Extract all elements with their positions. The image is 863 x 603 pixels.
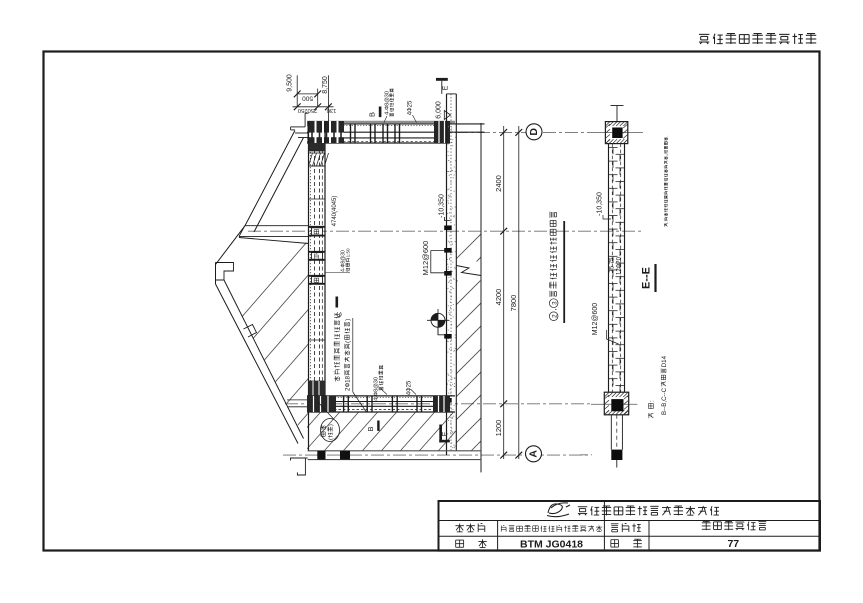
svg-text:-10,350: -10,350 — [439, 194, 446, 218]
svg-text:4Ф25: 4Ф25 — [407, 380, 413, 395]
svg-text:4-Ф8@30: 4-Ф8@30 — [374, 377, 380, 401]
svg-text:D14: D14 — [661, 355, 668, 367]
svg-text:-10,350: -10,350 — [597, 192, 604, 216]
svg-text::: : — [664, 222, 669, 223]
svg-text:3: 3 — [551, 301, 558, 305]
svg-text:2: 2 — [551, 314, 558, 318]
svg-text:8,750: 8,750 — [322, 76, 329, 94]
svg-text:250250: 250250 — [298, 107, 317, 113]
svg-text:E: E — [442, 431, 449, 436]
svg-text:77: 77 — [727, 538, 739, 550]
svg-text:9,500: 9,500 — [287, 74, 294, 92]
svg-text:M12@600: M12@600 — [592, 303, 599, 336]
svg-text:BTM JG0418: BTM JG0418 — [520, 538, 583, 550]
svg-text:B--B,C--C: B--B,C--C — [661, 387, 668, 415]
svg-text:2400: 2400 — [494, 175, 503, 192]
svg-text:D: D — [528, 128, 540, 136]
svg-text::: : — [649, 400, 656, 402]
svg-text:M12@600: M12@600 — [421, 241, 430, 276]
svg-text:1:50: 1:50 — [346, 248, 351, 257]
svg-text:B: B — [366, 426, 375, 431]
svg-text:A: A — [527, 450, 539, 458]
svg-text:4Ф25: 4Ф25 — [408, 100, 414, 115]
svg-text:E: E — [443, 85, 450, 90]
svg-text:1200: 1200 — [494, 420, 503, 437]
svg-text:4200: 4200 — [494, 289, 503, 306]
svg-text:500: 500 — [302, 95, 313, 102]
svg-text:(: ( — [329, 438, 335, 440]
svg-text:18: 18 — [345, 375, 352, 382]
svg-text:B: B — [368, 112, 377, 117]
svg-text:.: . — [664, 135, 669, 136]
svg-text:): ) — [329, 424, 335, 426]
svg-text:130: 130 — [327, 107, 337, 113]
svg-text:12Ф20: 12Ф20 — [617, 256, 623, 275]
svg-text:E--E: E--E — [641, 267, 653, 289]
svg-text:6,000: 6,000 — [436, 101, 443, 119]
svg-text:75 75: 75 75 — [610, 257, 616, 273]
svg-text:7800: 7800 — [509, 295, 518, 312]
svg-text:4740(4045): 4740(4045) — [332, 196, 338, 227]
svg-text:): ) — [345, 319, 352, 321]
